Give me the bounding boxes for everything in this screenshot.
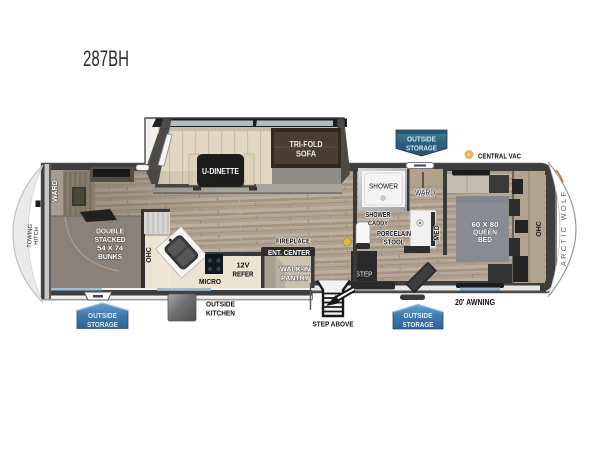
svg-text:BUNKS: BUNKS: [98, 252, 122, 261]
svg-text:WARD: WARD: [50, 180, 59, 202]
svg-text:OUTSIDE: OUTSIDE: [404, 311, 433, 320]
svg-text:MED: MED: [434, 225, 441, 241]
svg-text:20' AWNING: 20' AWNING: [455, 298, 495, 307]
svg-text:STEP ABOVE: STEP ABOVE: [313, 320, 354, 329]
svg-text:KITCHEN: KITCHEN: [206, 309, 235, 318]
svg-text:OUTSIDE: OUTSIDE: [407, 135, 436, 144]
svg-text:STORAGE: STORAGE: [406, 144, 437, 153]
svg-text:FIREPLACE: FIREPLACE: [276, 237, 310, 246]
svg-text:REFER: REFER: [233, 270, 255, 279]
svg-text:CADDY: CADDY: [368, 219, 388, 228]
svg-text:OHC: OHC: [536, 221, 543, 237]
svg-text:STORAGE: STORAGE: [87, 320, 118, 329]
svg-text:ARCTIC WOLF: ARCTIC WOLF: [559, 190, 568, 267]
svg-text:12V: 12V: [237, 261, 250, 270]
svg-text:MICRO: MICRO: [199, 277, 221, 286]
svg-text:SOFA: SOFA: [296, 150, 316, 159]
svg-text:CENTRAL VAC: CENTRAL VAC: [478, 152, 521, 161]
svg-text:ENT. CENTER: ENT. CENTER: [268, 248, 311, 257]
svg-text:OUTSIDE: OUTSIDE: [88, 311, 117, 320]
svg-text:WARD: WARD: [415, 189, 435, 198]
svg-text:287BH: 287BH: [83, 46, 129, 71]
svg-text:SHOWER: SHOWER: [369, 182, 398, 191]
svg-text:STOOL: STOOL: [384, 238, 406, 247]
svg-text:PANTRY: PANTRY: [281, 274, 309, 283]
svg-text:WALK-IN: WALK-IN: [280, 265, 310, 274]
svg-text:STORAGE: STORAGE: [403, 320, 434, 329]
svg-text:STEP: STEP: [356, 270, 373, 279]
svg-text:HITCH: HITCH: [34, 227, 41, 245]
svg-text:OHC: OHC: [146, 247, 153, 263]
svg-text:OUTSIDE: OUTSIDE: [206, 300, 235, 309]
svg-text:TRI-FOLD: TRI-FOLD: [290, 140, 323, 149]
svg-text:BED: BED: [478, 235, 492, 244]
